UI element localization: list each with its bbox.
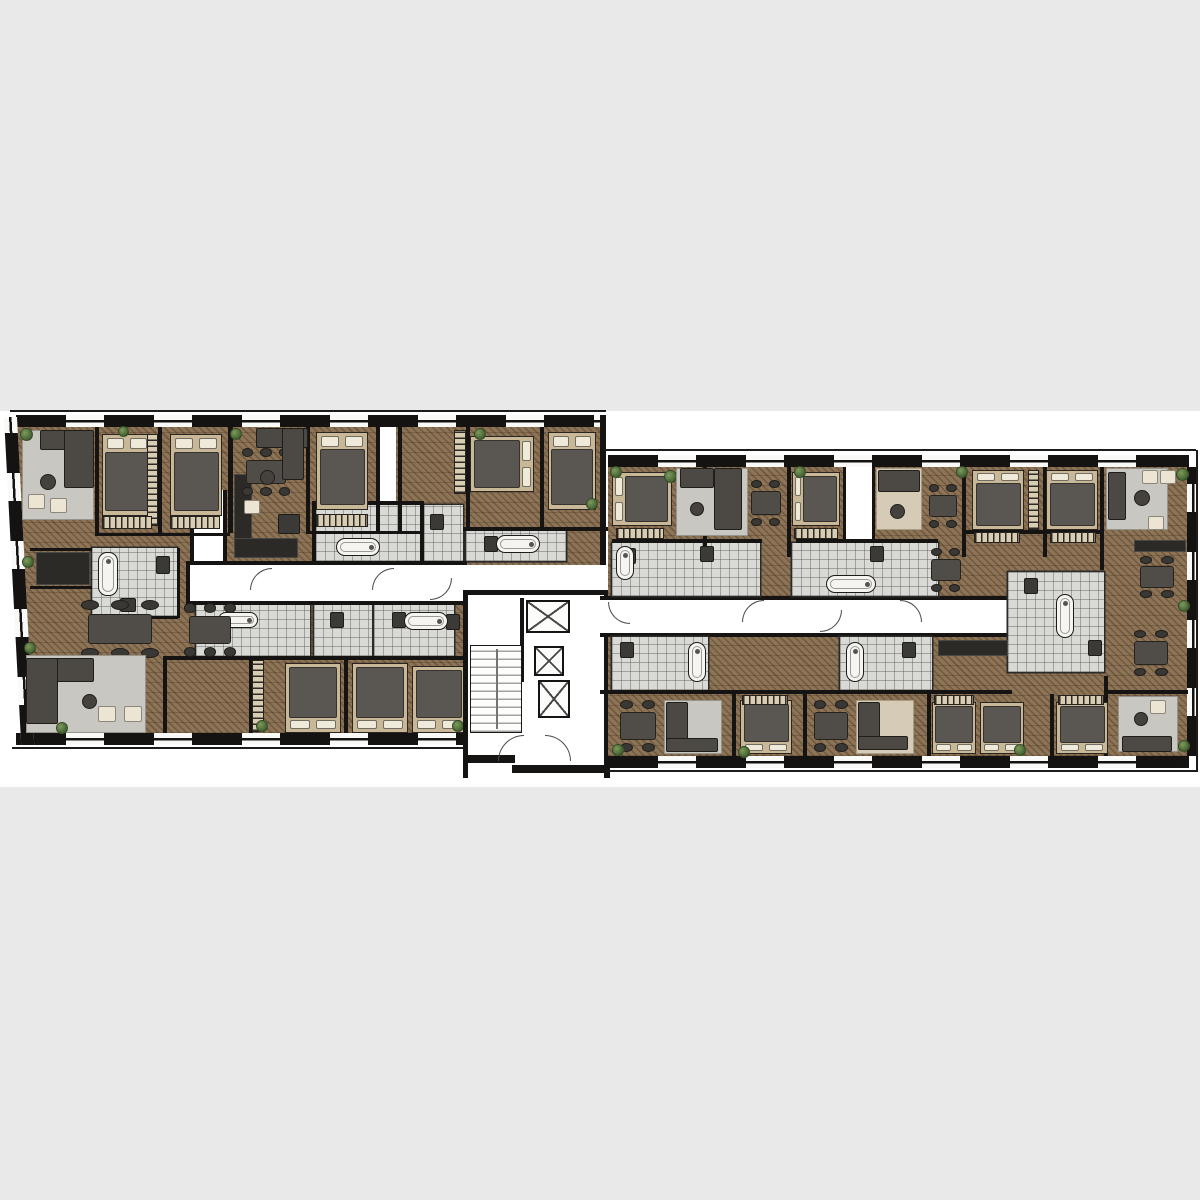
chair [814,700,827,709]
bed [612,472,672,526]
pillow [345,436,363,447]
pillow [553,436,570,447]
wall [30,548,92,551]
chair [1155,630,1168,638]
wall [312,501,316,561]
pillow [130,438,147,449]
duvet [174,452,219,511]
armchair [1134,712,1148,726]
kitchen-counter [1134,540,1186,552]
dining-set [808,700,854,752]
duvet [1060,706,1105,743]
chair [224,647,236,657]
plant [20,428,33,441]
armchair [1134,490,1150,506]
duvet [356,667,405,717]
pouf [124,706,142,722]
sofa [1108,472,1126,520]
dining-set [1134,556,1180,598]
bathtub [404,612,448,630]
duvet [625,476,668,522]
pillow [383,720,402,730]
toilet [330,612,344,628]
bed [972,470,1024,530]
wall [1050,694,1054,756]
plant [586,498,598,510]
wall [344,660,348,733]
chair [642,700,655,709]
pouf [1142,470,1158,484]
chair [769,480,780,488]
chair [1161,556,1174,564]
plant [1176,468,1189,481]
toilet [870,546,884,562]
dining-table [189,616,232,644]
right-wing-south-facade [608,756,1189,768]
bed [792,472,840,526]
chair [620,700,633,709]
dining-set [746,480,786,526]
chair [931,548,942,556]
chair [949,584,960,592]
wardrobe [742,695,788,705]
toilet [156,556,170,574]
wall [1177,455,1189,467]
wall [1177,756,1189,768]
staircase [470,645,522,733]
chair [81,600,99,610]
dining-table [620,712,657,739]
bathtub [336,538,380,556]
wall [306,531,422,534]
wall [223,490,227,565]
bed [1056,702,1108,754]
kitchen-counter [36,552,90,585]
wardrobe [934,695,974,705]
chair [929,520,940,528]
pillow [417,720,436,729]
plant [794,466,806,478]
chair [242,448,253,457]
pillow [984,744,999,751]
dining-set [1128,630,1174,676]
pillow [290,720,309,730]
chair [769,518,780,526]
wardrobe [147,434,158,526]
chair [949,548,960,556]
wardrobe [1028,470,1039,530]
chair [1155,668,1168,676]
dining-table [931,559,961,582]
duvet [1050,483,1095,526]
sofa [64,430,94,488]
stove [278,514,300,534]
wall [612,539,762,543]
pillow [1061,744,1079,751]
duvet [983,706,1021,743]
toilet [430,514,444,530]
pillow [615,502,623,521]
chair [1140,556,1153,564]
wall [787,467,791,557]
sofa [680,468,714,488]
toilet [902,642,916,658]
dining-set [924,484,962,528]
pillow [1075,473,1093,481]
wall [376,427,380,533]
elevator [538,680,570,718]
bed [740,700,792,754]
toilet [1024,578,1038,594]
dining-set [926,548,966,592]
chair [279,487,290,496]
plant [118,426,129,437]
duvet [474,440,520,488]
dining-table [1140,566,1175,588]
duvet [289,667,338,717]
chair [946,520,957,528]
pillow [199,438,217,449]
plant [1014,744,1026,756]
floor-plan-stage [0,0,1200,1200]
drain [623,553,628,558]
coffee-table [40,474,56,490]
bed [470,436,534,492]
bathtub [826,575,876,593]
pouf [28,494,45,509]
chair [242,487,253,496]
wardrobe [102,516,152,529]
plant [56,722,68,734]
chair [1140,590,1153,598]
stair-rail [496,649,498,729]
sofa [282,428,304,480]
dining-table [814,712,849,739]
wall [95,533,230,536]
wall [540,427,544,531]
wall [796,539,938,543]
pillow [1001,473,1019,481]
wall [420,501,424,561]
duvet [416,670,463,718]
hair [606,770,1196,772]
wardrobe [616,528,664,539]
bed [170,434,222,516]
toilet [700,546,714,562]
plant [1178,740,1190,752]
pillow [615,477,623,496]
dining-set [78,600,162,658]
sink [446,614,460,630]
duvet [744,704,789,743]
wall [463,527,608,531]
wardrobe [316,514,368,527]
sofa [878,470,920,492]
hair [10,410,606,412]
apartment-floor-plan [0,0,1200,1200]
plant [256,720,268,732]
drain [437,619,442,624]
dining-set [182,603,238,657]
drain [247,618,252,623]
pillow [795,477,801,496]
wall [843,467,846,543]
duvet [976,483,1021,526]
chair [1161,590,1174,598]
pillow [769,744,787,751]
pouf [1148,516,1164,530]
corridor-right [600,600,1012,633]
pillow [522,441,531,460]
wall [962,467,966,557]
pouf [1160,470,1176,484]
pillow [795,502,801,521]
bed [352,663,408,733]
chair [224,603,236,613]
wall [803,694,807,756]
wall [228,427,233,533]
pouf [98,706,116,722]
dining-table [929,495,958,518]
armchair [260,470,275,485]
wall [1104,690,1188,694]
drain [369,545,374,550]
drain [529,542,534,547]
wardrobe [1050,532,1096,543]
pillow [175,438,193,449]
chair [751,518,762,526]
wardrobe [1058,695,1104,705]
chair [946,484,957,492]
dining-table [751,491,781,515]
bed [316,432,368,510]
bed [1046,470,1098,530]
bathtub [846,642,864,682]
wall [177,548,180,618]
wardrobe [170,516,220,529]
plant [474,428,486,440]
hair [1196,450,1198,772]
pillow [316,720,335,730]
left-wing-north-facade [16,415,602,427]
plant [22,556,34,568]
coffee-table [690,502,704,516]
coffee-table [82,694,97,709]
pillow [357,720,376,730]
duvet [803,476,837,522]
chair [204,603,216,613]
pillow [1051,473,1069,481]
bed [102,434,152,516]
chair [260,448,271,457]
chair [642,743,655,752]
wall [872,467,875,543]
chair [929,484,940,492]
wall [463,590,610,595]
elevator [534,646,564,676]
wall [732,694,736,756]
wall [95,427,99,533]
sofa [858,736,908,750]
drain [695,649,700,654]
chair [931,584,942,592]
chair [751,480,762,488]
bathtub [1056,594,1074,638]
entry-hall [846,467,872,543]
pillow [107,438,124,449]
plant [612,744,624,756]
chair [141,600,159,610]
wardrobe [974,532,1020,543]
chair [835,700,848,709]
pouf [1150,700,1166,714]
duvet [320,449,365,505]
plant [24,642,36,654]
pouf [50,498,67,513]
drain [853,649,858,654]
plant [230,428,242,440]
wardrobe [794,528,838,539]
wall [398,427,402,533]
sofa [1122,736,1172,752]
elevator [526,600,570,633]
wall [512,765,610,773]
armchair [890,504,905,519]
bathtub [688,642,706,682]
right-wing-north-facade [608,455,1189,467]
wall [158,427,162,533]
chair [1134,668,1147,676]
sink [1088,640,1102,656]
wall [927,694,931,756]
pillow [936,744,951,751]
duvet [935,706,973,743]
bathtub [616,546,634,580]
chair [184,603,196,613]
dining-table [88,614,152,644]
wall [600,415,606,565]
plant [610,466,622,478]
wall [600,596,1012,600]
pillow [977,473,995,481]
hair [604,449,1196,451]
bathtub [496,535,540,553]
bathtub [98,552,118,596]
sink [620,642,634,658]
chair [835,743,848,752]
sofa [666,738,718,752]
pouf [244,500,260,514]
pillow [1085,744,1103,751]
wall [1100,467,1104,570]
sofa [714,468,742,530]
wall [163,660,167,733]
plant [956,466,968,478]
dining-table [1134,641,1169,665]
lobby-upper [463,565,606,592]
pillow [522,467,531,486]
chair [260,487,271,496]
chair [184,647,196,657]
chair [1134,630,1147,638]
kitchen-counter [938,640,1008,656]
pillow [321,436,339,447]
wall [463,592,468,778]
duvet [551,449,592,505]
chair [814,743,827,752]
wardrobe [454,430,466,494]
chair [204,647,216,657]
entry-hall [380,427,396,505]
kitchen-counter [234,538,298,558]
corridor-left [190,565,463,601]
sofa [26,658,58,724]
wall [186,561,190,605]
plant [1178,600,1190,612]
wall [30,586,92,589]
bed [932,702,976,754]
drain [106,559,111,564]
chair [111,600,129,610]
drain [865,582,870,587]
plant [738,746,750,758]
duvet [105,452,148,511]
pillow [575,436,592,447]
pillow [957,744,972,751]
bed [285,663,341,733]
drain [1063,601,1068,606]
wall [186,561,467,565]
